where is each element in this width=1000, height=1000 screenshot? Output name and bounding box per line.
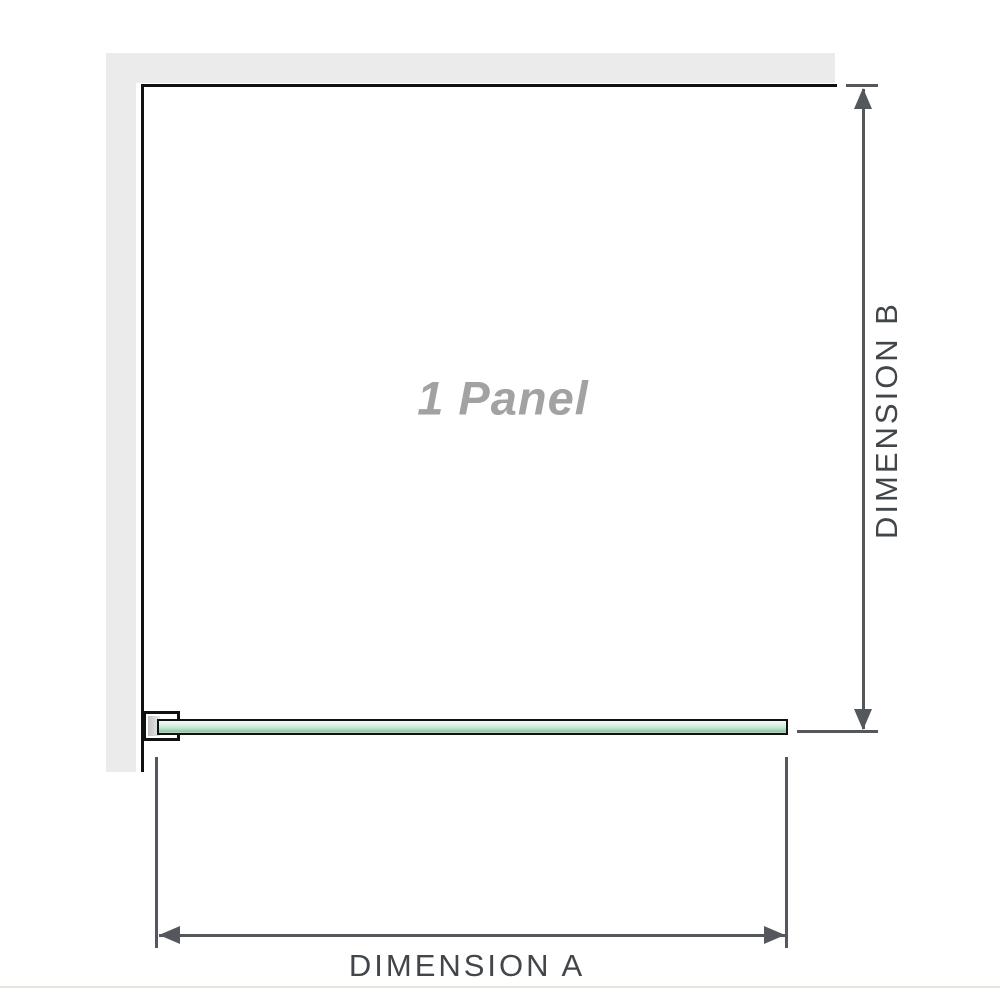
frame-left-line: [141, 84, 144, 772]
wall-top-strip: [106, 53, 835, 83]
dimension-a-right-extension-line: [785, 757, 788, 948]
dimension-b-bottom-tick: [797, 730, 878, 733]
panel-count-label: 1 Panel: [417, 371, 589, 426]
panel-dimension-diagram: 1 Panel DIMENSION B DIMENSION A: [0, 0, 1000, 1000]
dimension-a-line: [159, 934, 785, 937]
dimension-b-arrow-up-icon: [854, 88, 872, 109]
dimension-b-arrow-down-icon: [854, 709, 872, 730]
frame-top-line: [142, 84, 837, 87]
image-bottom-rule: [0, 986, 1000, 988]
wall-left-strip: [106, 53, 136, 772]
dimension-a-left-extension-line: [155, 757, 158, 948]
dimension-a-arrow-right-icon: [764, 926, 785, 944]
dimension-a-label: DIMENSION A: [349, 948, 585, 984]
dimension-b-line: [862, 89, 865, 729]
dimension-b-top-tick: [846, 84, 878, 87]
dimension-a-arrow-left-icon: [159, 926, 180, 944]
glass-panel-bar: [157, 719, 788, 735]
dimension-b-label: DIMENSION B: [869, 301, 905, 539]
